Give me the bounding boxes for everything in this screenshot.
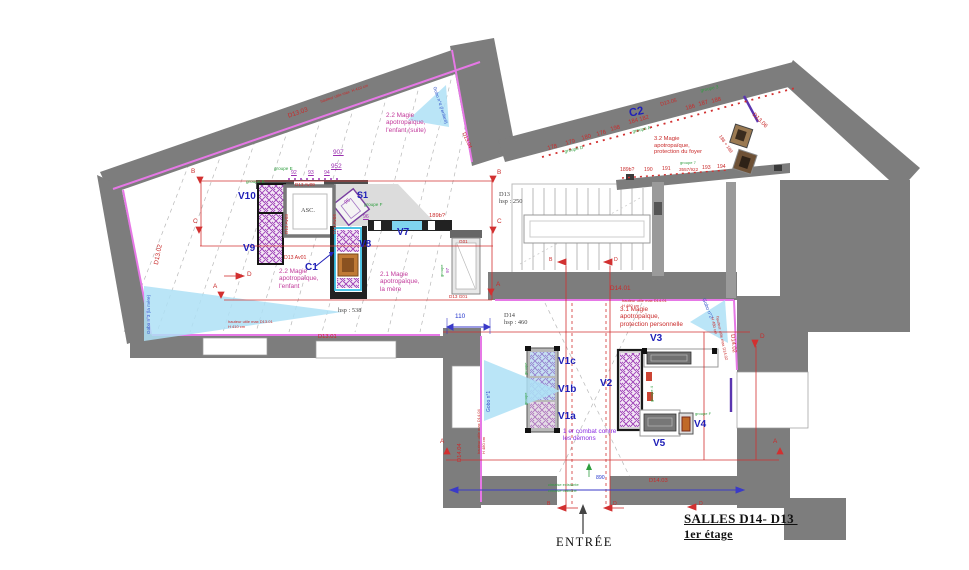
vitrine-v1c: V1c [558, 356, 576, 368]
note-combat: 1 er combat contre les démons [563, 428, 616, 443]
vitrine-v8: V8 [359, 239, 371, 251]
vitrine-v2: V2 [600, 378, 612, 390]
vitrine-v1b: V1b [558, 384, 576, 396]
group-label-v2: groupe 4 [650, 386, 655, 402]
vitrine-v1a: V1a [558, 411, 576, 423]
section-a-lower-right: A [773, 438, 777, 445]
vitrine-v5: V5 [653, 438, 665, 450]
gobo3-label: Gobo n°3 (la mère) [146, 295, 151, 334]
object-num-3557-922: 3557/922 [679, 167, 698, 172]
theme-3-2: 3.2 Magie apotropaïque, protection du fo… [654, 136, 702, 156]
entrance-label: ENTRÉE [556, 535, 613, 549]
section-b-right: B [497, 169, 501, 176]
object-num-180: 180 [581, 133, 592, 142]
object-num-97: 97 [445, 268, 450, 273]
group-label-a: groupe A [632, 125, 651, 134]
section-c-right: C [497, 218, 502, 225]
room-d13-stairs: D13 hsp : 250 [499, 191, 522, 206]
section-a-right: A [496, 281, 500, 288]
vitrine-s1: S1 [357, 190, 368, 200]
object-num-94: 94 [324, 171, 330, 177]
group-label-g01: groupe [440, 265, 445, 277]
object-num-188: 188 [711, 96, 722, 105]
wall-note-d14-02: hauteur utile max D14.02 H 480 cm [710, 316, 728, 362]
section-d-stairs: D [614, 258, 618, 264]
group-label-3: groupe 3 [700, 84, 719, 93]
object-num-194: 194 [717, 165, 726, 171]
wall-id-d13-av04: D13 Av04 [332, 214, 337, 234]
wall-id-d14-03: D14.03 [649, 478, 668, 485]
object-num-176: 176 [596, 129, 607, 138]
object-num-191: 191 [662, 167, 671, 173]
wall-note-d14-04: hauteur utile max D14.04 H 480 cm [477, 409, 486, 454]
section-b-stairs: B [549, 258, 552, 264]
wall-id-d13-g01: D13 G01 [449, 294, 467, 299]
wall-id-d13-02: D13.02 [153, 244, 164, 266]
object-num-189b-left: 189b? [429, 213, 445, 220]
section-a-left: A [213, 283, 217, 290]
object-num-193: 193 [702, 166, 711, 172]
group-label-f2: groupe F [695, 412, 711, 417]
wall-id-d13-av03: D13 Av03 [284, 214, 289, 234]
object-num-188-189: 188 + 189 [718, 134, 734, 154]
object-num-189b: 189b? [620, 168, 634, 174]
vitrine-v3: V3 [650, 333, 662, 345]
dim-110: 110 [455, 313, 465, 320]
object-num-186: 186 [685, 103, 696, 112]
wall-id-d13-05: D13.05 [660, 99, 678, 109]
object-num-92: 92 [291, 171, 297, 177]
object-num-93: 93 [308, 171, 314, 177]
group-label-e: groupe E [274, 166, 293, 171]
drawing-title-line2: 1er étage [684, 528, 733, 542]
floor-plan-page: D13.03hauteur utile max H 410 cmGobo n°4… [0, 0, 969, 570]
section-c-left: C [193, 218, 198, 225]
section-d-upper-right: D [760, 333, 765, 340]
vitrine-v4: V4 [694, 419, 706, 431]
theme-2-2: 2.2 Magie apotropaïque, l'enfant [279, 268, 318, 290]
vitrine-v7: V7 [397, 227, 409, 239]
drawing-title-line1: SALLES D14- D13 [684, 512, 798, 527]
note-cimaise-1: cimaise existante [548, 483, 579, 488]
wall-id-d13-av01: D13 Av01 [284, 256, 306, 262]
theme-2-1: 2.1 Magie apotropaïque, la mère [380, 271, 419, 293]
section-d-bottom-right: D [699, 502, 703, 508]
object-num-190: 190 [644, 168, 653, 174]
dim-hsp-538: hsp : 538 [338, 307, 361, 314]
section-a-lower-left: A [440, 438, 444, 445]
room-d14: D14 hsp : 460 [504, 312, 527, 327]
group-label-7: groupe 7 [680, 161, 696, 166]
vitrine-v10: V10 [238, 191, 256, 203]
object-num-178: 178 [547, 143, 558, 152]
gobo1-label: Gobo n°1 [487, 391, 493, 412]
section-d-mid: D [247, 271, 252, 278]
wall-id-d14-01: D14.01 [610, 285, 631, 292]
section-b-left: B [191, 168, 195, 175]
group-label-v1c: groupe [524, 363, 529, 375]
wall-note-d13-01: hauteur utile max D13.01 H 410 cm [228, 320, 273, 329]
wall-note-d13-03: hauteur utile max H 410 cm [320, 84, 369, 105]
object-num-95: 95 [344, 198, 352, 206]
wall-id-d14-02: D14.02 [728, 334, 737, 353]
theme-3-1: 3.1 Magie apotropaïque, protection perso… [620, 306, 683, 328]
wall-id-d14-04: D14.04 [457, 443, 464, 462]
wall-id-d13-av09: D13 Av09 [295, 182, 315, 187]
gobo4-label: Gobo n°4 (l'enfant) [432, 86, 449, 124]
vitrine-g01-tag: G01 [459, 239, 468, 244]
object-num-907: 907 [333, 149, 344, 156]
elevator-label: ASC. [301, 207, 315, 214]
wall-id-d13-01: D13.01 [318, 334, 337, 341]
object-num-96: 96 [363, 215, 369, 221]
wall-id-d13-06: D13.06 [750, 112, 768, 130]
dim-890: 890 [596, 476, 605, 482]
note-cimaise-2: cimaise blanche [548, 489, 577, 494]
annotation-layer: D13.03hauteur utile max H 410 cmGobo n°4… [0, 0, 969, 570]
section-b-entrance: B [547, 502, 550, 508]
group-label-b: groupe B [246, 179, 265, 184]
wall-id-d13-04: D13.04 [460, 132, 472, 150]
group-label-v1b: groupe [524, 393, 529, 405]
object-num-187: 187 [698, 99, 709, 108]
section-d-entrance: D [613, 502, 617, 508]
wall-id-d13-03: D13.03 [287, 106, 309, 120]
theme-2-2-suite: 2.2 Magie apotropaïque, l'enfant (suite) [386, 112, 426, 134]
vitrine-v9: V9 [243, 243, 255, 255]
group-label-f1: groupe F [364, 202, 382, 207]
object-num-198: 198 [610, 124, 621, 133]
object-num-952: 952 [331, 163, 342, 170]
